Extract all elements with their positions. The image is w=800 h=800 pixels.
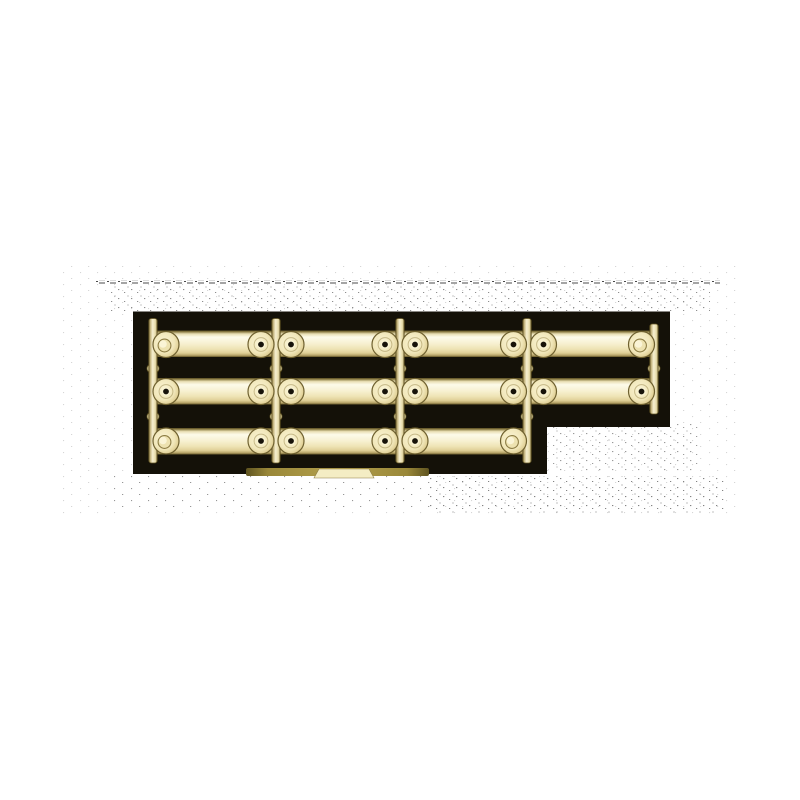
rivet-pad-with-hole (531, 332, 557, 358)
dither-noise (110, 476, 430, 508)
rivet-pad-with-hole (248, 332, 274, 358)
screw-boss-pad (501, 428, 527, 454)
screw-boss-pad (153, 428, 179, 454)
rivet-pad-with-hole (278, 379, 304, 405)
brass-bar-row (150, 428, 531, 455)
rivet-pad-with-hole (248, 379, 274, 405)
rivet-pad-with-hole (501, 332, 527, 358)
rivet-pad-with-hole (531, 379, 557, 405)
rivet-pad-with-hole (248, 428, 274, 454)
rivet-pad-with-hole (402, 379, 428, 405)
bottom-edge-part-highlight (314, 469, 374, 478)
rivet-pad-with-hole (372, 428, 398, 454)
sprue-photo-svg (0, 0, 800, 800)
dither-noise (548, 424, 698, 472)
rivet-pad-with-hole (372, 332, 398, 358)
rivet-pad-with-hole (501, 379, 527, 405)
rivet-pad-with-hole (278, 428, 304, 454)
rivet-pad-with-hole (402, 428, 428, 454)
screw-boss-pad (629, 332, 655, 358)
rivet-pad-with-hole (278, 332, 304, 358)
rivet-pad-with-hole (402, 332, 428, 358)
screw-boss-pad (153, 332, 179, 358)
page-background: { "scene": { "description": "Product pho… (0, 0, 800, 800)
dither-noise (430, 476, 725, 514)
rivet-pad-with-hole (153, 379, 179, 405)
rivet-pad-with-hole (629, 379, 655, 405)
rivet-pad-with-hole (372, 379, 398, 405)
product-photo (0, 0, 800, 800)
